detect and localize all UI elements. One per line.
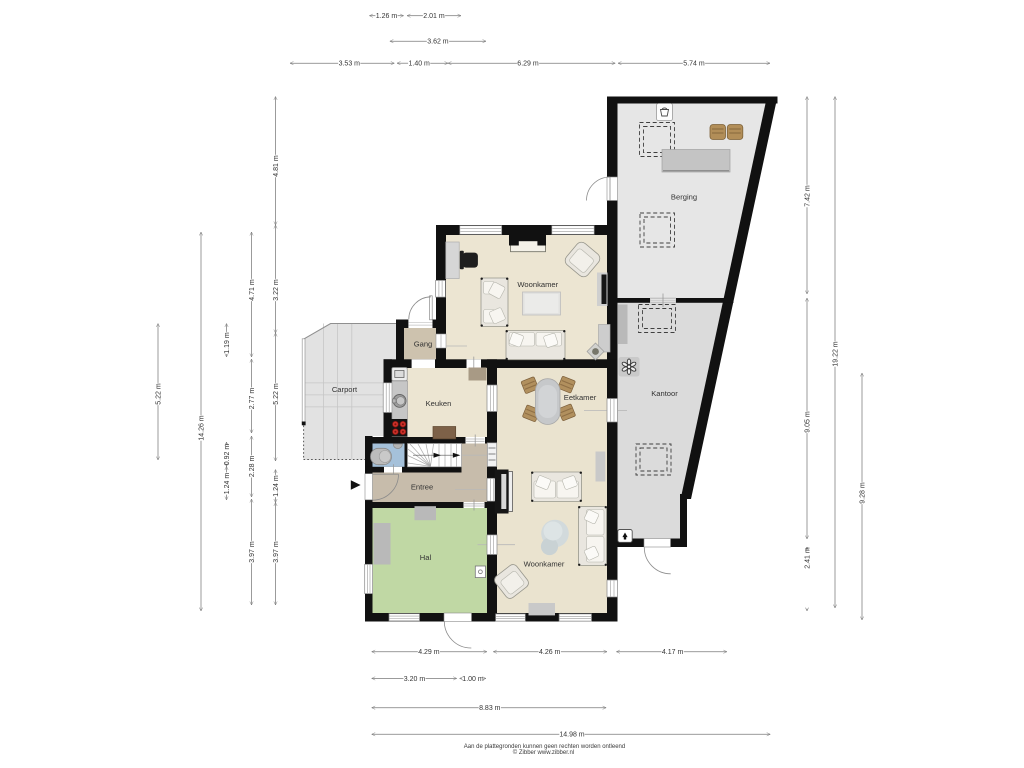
svg-text:8.83 m: 8.83 m [479, 705, 501, 712]
svg-text:5.22 m: 5.22 m [273, 383, 280, 405]
svg-text:3.62 m: 3.62 m [427, 39, 449, 46]
svg-text:Gang: Gang [414, 340, 433, 349]
svg-text:4.71 m: 4.71 m [249, 279, 256, 301]
svg-text:4.81 m: 4.81 m [273, 155, 280, 177]
svg-text:1.24 m: 1.24 m [273, 475, 280, 497]
svg-text:0.92 m: 0.92 m [224, 444, 231, 466]
svg-text:6.29 m: 6.29 m [517, 61, 539, 68]
svg-text:19.22 m: 19.22 m [832, 341, 839, 366]
svg-text:2.01 m: 2.01 m [423, 13, 445, 20]
svg-text:1.00 m: 1.00 m [462, 676, 484, 683]
svg-text:Keuken: Keuken [426, 399, 452, 408]
svg-text:14.98 m: 14.98 m [559, 732, 584, 739]
svg-text:4.29 m: 4.29 m [418, 649, 440, 656]
svg-text:2.77 m: 2.77 m [249, 388, 256, 410]
svg-text:1.24 m: 1.24 m [224, 473, 231, 495]
svg-text:3.53 m: 3.53 m [339, 61, 361, 68]
svg-text:Berging: Berging [671, 193, 697, 202]
svg-text:Woonkamer: Woonkamer [524, 559, 565, 568]
svg-text:9.28 m: 9.28 m [859, 482, 866, 504]
svg-text:1.19 m: 1.19 m [224, 332, 231, 354]
svg-text:3.97 m: 3.97 m [249, 541, 256, 563]
svg-text:3.97 m: 3.97 m [273, 541, 280, 563]
svg-text:1.40 m: 1.40 m [408, 61, 430, 68]
svg-text:Hal: Hal [420, 553, 432, 562]
svg-text:Entree: Entree [411, 483, 433, 492]
svg-text:9.05 m: 9.05 m [804, 411, 811, 433]
svg-text:Eetkamer: Eetkamer [564, 393, 597, 402]
svg-text:5.74 m: 5.74 m [683, 61, 705, 68]
svg-text:Kantoor: Kantoor [651, 389, 678, 398]
svg-text:© Zibber www.zibber.nl: © Zibber www.zibber.nl [513, 749, 574, 756]
svg-text:4.26 m: 4.26 m [539, 649, 561, 656]
svg-text:Woonkamer: Woonkamer [517, 280, 558, 289]
svg-text:5.22 m: 5.22 m [155, 383, 162, 405]
svg-text:4.17 m: 4.17 m [662, 649, 684, 656]
svg-text:Carport: Carport [332, 385, 358, 394]
svg-text:2.28 m: 2.28 m [249, 456, 256, 478]
svg-text:3.20 m: 3.20 m [404, 676, 426, 683]
svg-text:2.41 m: 2.41 m [804, 547, 811, 569]
svg-text:14.26 m: 14.26 m [198, 415, 205, 440]
svg-text:7.42 m: 7.42 m [804, 185, 811, 207]
svg-text:1.26 m: 1.26 m [376, 13, 398, 20]
svg-text:3.22 m: 3.22 m [273, 279, 280, 301]
